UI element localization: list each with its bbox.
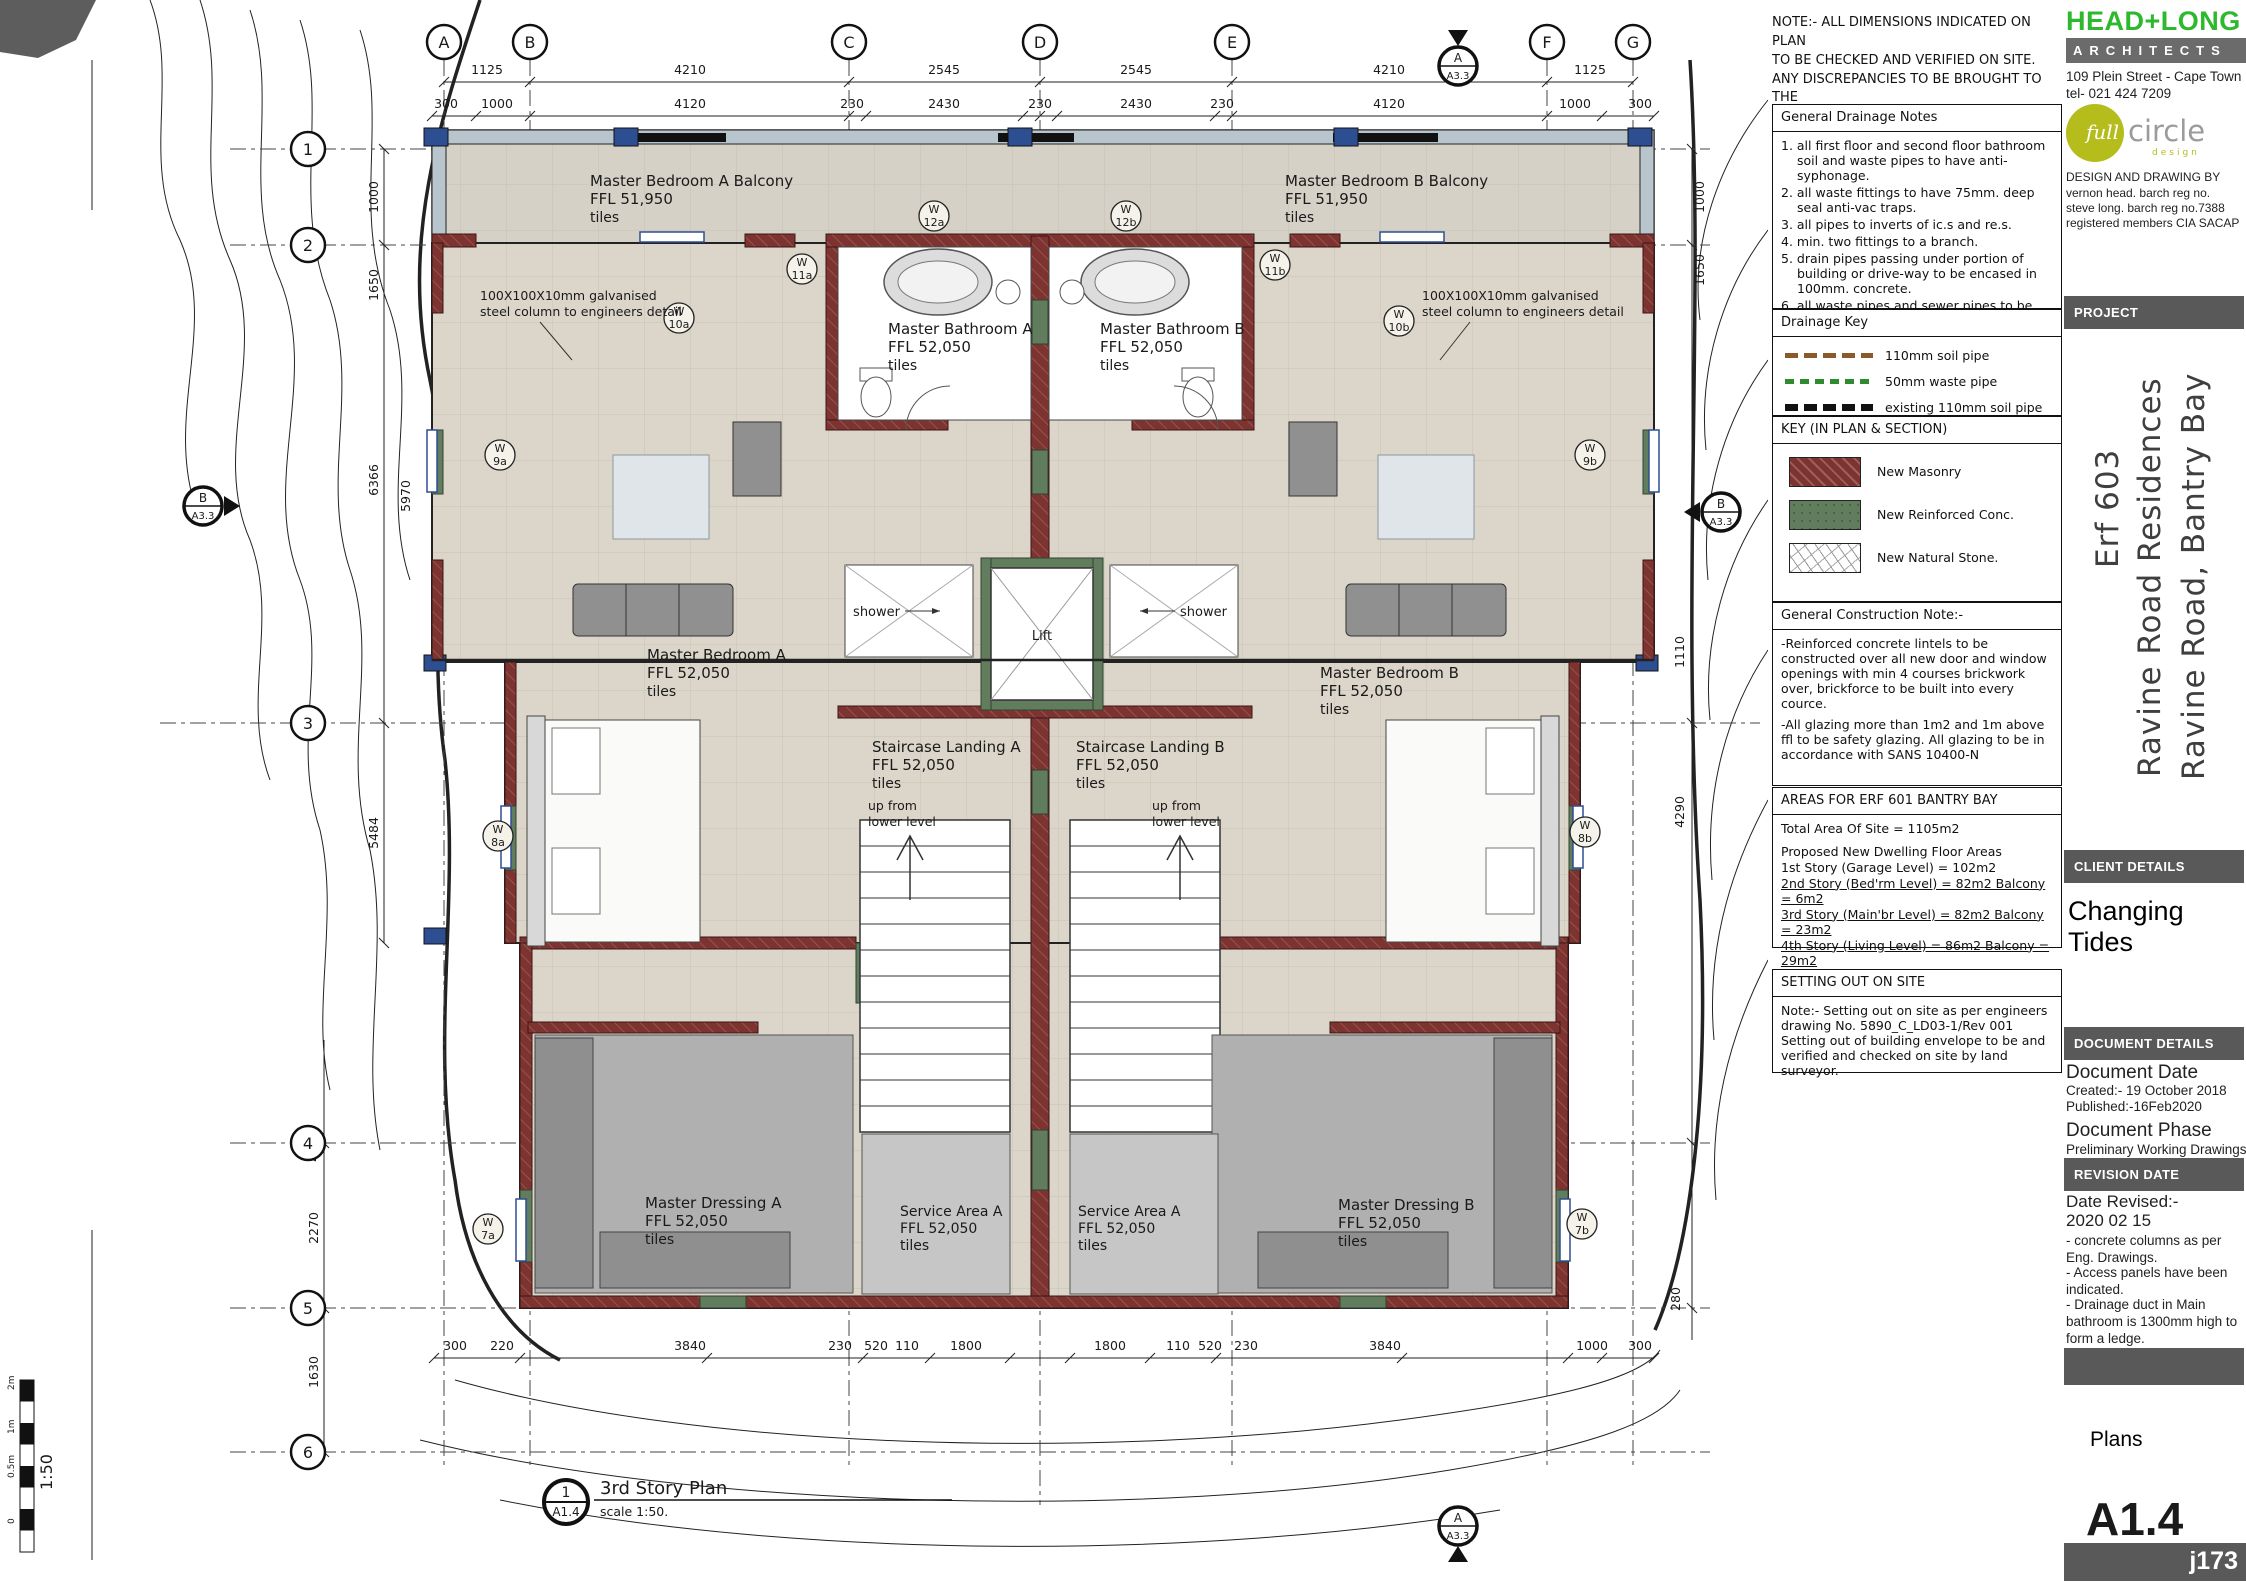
dim: 300 <box>443 1338 467 1353</box>
dim: 4210 <box>674 62 706 77</box>
box-title: General Construction Note:- <box>1773 603 2061 630</box>
grid-label: E <box>1227 33 1237 52</box>
section-letter: B <box>199 491 207 505</box>
dim: 520 <box>864 1338 888 1353</box>
steel-column-note-b2: steel column to engineers detail <box>1422 304 1624 319</box>
window-tag-id: 9b <box>1583 455 1597 468</box>
scale-tick: 1m <box>7 1420 17 1435</box>
project-name: Ravine Road Residences <box>2132 255 2168 777</box>
client-section-bar: CLIENT DETAILS <box>2064 850 2244 883</box>
dim: 220 <box>490 1338 514 1353</box>
room-name: Service Area A <box>1078 1204 1181 1220</box>
window-tag-id: 9a <box>493 455 507 468</box>
revision-note: - Access panels have been indicated. <box>2066 1265 2244 1299</box>
window-tag-id: 12a <box>924 216 945 229</box>
window-tag-prefix: W <box>797 256 808 269</box>
drainage-key-label: existing 110mm soil pipe <box>1885 400 2042 415</box>
dim: 230 <box>1028 96 1052 111</box>
room-ffl: FFL 52,050 <box>888 338 971 356</box>
room-finish: tiles <box>900 1238 929 1254</box>
window-tag-prefix: W <box>495 442 506 455</box>
room-name: Master Bedroom A <box>647 646 787 664</box>
document-phase-heading: Document Phase <box>2066 1120 2246 1142</box>
plan-key-row: New Natural Stone. <box>1789 543 2053 573</box>
document-date-heading: Document Date <box>2066 1062 2246 1084</box>
new-natural-stone-swatch <box>1789 543 1861 573</box>
window-tag-id: 10a <box>669 318 690 331</box>
plan-key-box: KEY (IN PLAN & SECTION) New Masonry New … <box>1772 416 2062 602</box>
revision-date: 2020 02 15 <box>2066 1211 2246 1231</box>
firm-logo-sub: ARCHITECTS <box>2066 38 2246 63</box>
revision-note: - concrete columns as per Eng. Drawings. <box>2066 1233 2244 1267</box>
design-credit-line: registered members CIA SACAP <box>2066 216 2246 231</box>
room-name: Master Bathroom A <box>888 320 1033 338</box>
area-line: 2nd Story (Bed'rm Level) = 82m2 Balcony … <box>1781 876 2053 906</box>
dim: 2545 <box>1120 62 1152 77</box>
room-name: Master Bathroom B <box>1100 320 1245 338</box>
setting-out-line: drawing No. 5890_C_LD03-1/Rev 001 <box>1781 1018 2053 1033</box>
box-title: Drainage Key <box>1773 310 2061 337</box>
area-line: 1st Story (Garage Level) = 102m2 <box>1781 860 2053 875</box>
dim: 110 <box>895 1338 919 1353</box>
drainage-key-label: 110mm soil pipe <box>1885 348 1989 363</box>
construction-note-para: -Reinforced concrete lintels to be const… <box>1781 636 2053 711</box>
note-line: ANY DISCREPANCIES TO BE BROUGHT TO THE <box>1772 71 2048 109</box>
dim: 300 <box>1628 96 1652 111</box>
window-tag-id: 8b <box>1578 832 1592 845</box>
section-letter: A <box>1454 1511 1463 1525</box>
dim: 1110 <box>1672 636 1687 668</box>
areas-box: AREAS FOR ERF 601 BANTRY BAY Total Area … <box>1772 787 2062 948</box>
dim: 280 <box>1668 1287 1683 1311</box>
grid-label: B <box>525 33 536 52</box>
room-ffl: FFL 52,050 <box>1078 1221 1155 1237</box>
room-name: Master Dressing A <box>645 1194 782 1212</box>
drainage-note: 5. drain pipes passing under portion of … <box>1781 251 2053 296</box>
room-name: Staircase Landing A <box>872 738 1021 756</box>
plan-key-label: New Natural Stone. <box>1877 550 1998 565</box>
section-ref: A3.3 <box>1447 71 1470 82</box>
dim: 1000 <box>1559 96 1591 111</box>
drainage-key-row: 110mm soil pipe <box>1785 348 2053 363</box>
room-ffl: FFL 52,050 <box>1076 756 1159 774</box>
scale-tick: 0 <box>7 1518 17 1524</box>
room-name: Master Bedroom B Balcony <box>1285 172 1488 190</box>
drainage-note: 2. all waste fittings to have 75mm. deep… <box>1781 185 2053 215</box>
grid-label: 2 <box>303 236 313 255</box>
window-tag-prefix: W <box>929 203 940 216</box>
dim: 230 <box>1210 96 1234 111</box>
room-name: Service Area A <box>900 1204 1003 1220</box>
window-tag-prefix: W <box>483 1216 494 1229</box>
plan-key-label: New Reinforced Conc. <box>1877 507 2014 522</box>
window-tag-prefix: W <box>1580 819 1591 832</box>
new-reinforced-conc-swatch <box>1789 500 1861 530</box>
note-line: NOTE:- ALL DIMENSIONS INDICATED ON PLAN <box>1772 14 2048 52</box>
steel-column-note-b1: 100X100X10mm galvanised <box>1422 288 1599 303</box>
room-name: Master Bedroom A Balcony <box>590 172 793 190</box>
note-line: TO BE CHECKED AND VERIFIED ON SITE. <box>1772 52 2048 71</box>
grid-label: D <box>1034 33 1046 52</box>
up-note-a2: lower level <box>868 814 936 829</box>
room-ffl: FFL 52,050 <box>872 756 955 774</box>
steel-column-note-a2: steel column to engineers detail <box>480 304 682 319</box>
window-tag-prefix: W <box>1121 203 1132 216</box>
dim: 1650 <box>366 269 381 301</box>
window-tag-id: 11b <box>1265 265 1286 278</box>
box-title: AREAS FOR ERF 601 BANTRY BAY <box>1773 788 2061 815</box>
plan-ref-number: 1 <box>562 1485 571 1501</box>
dim: 110 <box>1166 1338 1190 1353</box>
dim: 5484 <box>366 817 381 849</box>
dim: 230 <box>828 1338 852 1353</box>
window-tag-prefix: W <box>1394 308 1405 321</box>
plan-key-row: New Masonry <box>1789 457 2053 487</box>
room-ffl: FFL 52,050 <box>647 664 730 682</box>
dim: 1800 <box>1094 1338 1126 1353</box>
construction-note-para: -All glazing more than 1m2 and 1m above … <box>1781 717 2053 762</box>
dim: 4120 <box>1373 96 1405 111</box>
soil-pipe-swatch <box>1785 353 1873 358</box>
document-phase: Preliminary Working Drawings <box>2066 1142 2246 1159</box>
dim: 4290 <box>1672 796 1687 828</box>
client-name: Changing Tides <box>2068 896 2246 958</box>
dim: 230 <box>1234 1338 1258 1353</box>
room-name: Master Bedroom B <box>1320 664 1459 682</box>
site-area-line: Total Area Of Site = 1105m2 <box>1781 821 2053 836</box>
room-ffl: FFL 51,950 <box>1285 190 1368 208</box>
window-tag-id: 7b <box>1575 1224 1589 1237</box>
dim: 1000 <box>1692 181 1707 213</box>
dim: 1000 <box>366 181 381 213</box>
document-created: Created:- 19 October 2018 <box>2066 1083 2246 1100</box>
drainage-note: 3. all pipes to inverts of ic.s and re.s… <box>1781 217 2053 232</box>
room-name: Master Dressing B <box>1338 1196 1475 1214</box>
room-finish: tiles <box>1338 1234 1367 1250</box>
plan-ref-sheet: A1.4 <box>552 1505 579 1519</box>
job-number: j173 <box>2189 1547 2238 1575</box>
window-tag-id: 12b <box>1116 216 1137 229</box>
room-ffl: FFL 52,050 <box>900 1221 977 1237</box>
section-letter: A <box>1454 51 1463 65</box>
plan-key-row: New Reinforced Conc. <box>1789 500 2053 530</box>
design-credit-line: vernon head. barch reg no. <box>2066 186 2246 201</box>
grid-label: 1 <box>303 140 313 159</box>
drainage-note: 4. min. two fittings to a branch. <box>1781 234 2053 249</box>
revision-heading: Date Revised:- <box>2066 1192 2246 1212</box>
setting-out-box: SETTING OUT ON SITE Note:- Setting out o… <box>1772 969 2062 1073</box>
scale-tick: 2m <box>7 1376 17 1391</box>
fullcircle-logo-design: design <box>2152 148 2200 158</box>
grid-label: 6 <box>303 1443 313 1462</box>
document-section-bar: DOCUMENT DETAILS <box>2064 1027 2244 1060</box>
waste-pipe-swatch <box>1785 379 1873 384</box>
dim: 2270 <box>306 1212 321 1244</box>
plan-scale: scale 1:50. <box>600 1504 668 1519</box>
window-tag-id: 10b <box>1389 321 1410 334</box>
design-credit-line: steve long. barch reg no.7388 <box>2066 201 2246 216</box>
dim: 1000 <box>481 96 513 111</box>
dim: 4120 <box>674 96 706 111</box>
window-tag-prefix: W <box>1270 252 1281 265</box>
shower-label-a: shower <box>853 605 901 620</box>
up-note-a1: up from <box>868 798 917 813</box>
room-finish: tiles <box>590 210 619 226</box>
dim: 1650 <box>1692 254 1707 286</box>
scale-tick: 0.5m <box>7 1455 17 1478</box>
fullcircle-logo-circle: circle <box>2128 114 2205 148</box>
dim: 1125 <box>1574 62 1606 77</box>
dim: 6366 <box>366 464 381 496</box>
window-tag-prefix: W <box>493 823 504 836</box>
drainage-key-label: 50mm waste pipe <box>1885 374 1997 389</box>
grid-label: 4 <box>303 1134 313 1153</box>
dim: 300 <box>434 96 458 111</box>
grid-label: G <box>1627 33 1639 52</box>
dim: 2430 <box>928 96 960 111</box>
grid-label: F <box>1542 33 1551 52</box>
setting-out-line: Note:- Setting out on site as per engine… <box>1781 1003 2053 1018</box>
revision-section-bar: REVISION DATE <box>2064 1158 2244 1191</box>
project-erf: Erf 603 <box>2090 408 2126 568</box>
dim: 4210 <box>1373 62 1405 77</box>
document-published: Published:-16Feb2020 <box>2066 1099 2246 1116</box>
project-address: Ravine Road, Bantry Bay <box>2176 255 2212 780</box>
box-title: General Drainage Notes <box>1773 105 2061 132</box>
room-finish: tiles <box>872 776 901 792</box>
design-credit-title: DESIGN AND DRAWING BY <box>2066 170 2246 185</box>
scale-bar-label: 1:50 <box>37 1454 56 1490</box>
drainage-key-row: existing 110mm soil pipe <box>1785 400 2053 415</box>
dim: 1800 <box>950 1338 982 1353</box>
window-tag-id: 8a <box>491 836 505 849</box>
grid-label: 5 <box>303 1299 313 1318</box>
sheet-name: Plans <box>2090 1428 2143 1452</box>
fullcircle-logo-full: full <box>2086 120 2119 144</box>
drainage-key-box: Drainage Key 110mm soil pipe 50mm waste … <box>1772 309 2062 416</box>
areas-heading: Proposed New Dwelling Floor Areas <box>1781 844 2053 859</box>
scale-bar: 1:50 2m 1m 0.5m 0 <box>7 1376 56 1553</box>
firm-address: 109 Plein Street - Cape Town <box>2066 68 2246 86</box>
grid-label: A <box>439 33 450 52</box>
dim: 520 <box>1198 1338 1222 1353</box>
general-drainage-notes-box: General Drainage Notes 1. all first floo… <box>1772 104 2062 309</box>
new-masonry-swatch <box>1789 457 1861 487</box>
up-note-b1: up from <box>1152 798 1201 813</box>
section-ref: A3.3 <box>1447 1531 1470 1542</box>
room-finish: tiles <box>1320 702 1349 718</box>
job-number-bar: j173 <box>2064 1543 2246 1581</box>
revision-note: - Drainage duct in Main bathroom is 1300… <box>2066 1297 2244 1348</box>
dim: 3840 <box>674 1338 706 1353</box>
window-tag-id: 7a <box>481 1229 495 1242</box>
sheet-corner-shade <box>0 0 96 58</box>
shower-label-b: shower <box>1180 605 1228 620</box>
drawing-sheet: 1125 4210 2545 2545 4210 1125 300 1000 4… <box>0 0 2246 1588</box>
section-ref: A3.3 <box>1710 517 1733 528</box>
steel-column-note-a1: 100X100X10mm galvanised <box>480 288 657 303</box>
dim: 5970 <box>398 480 413 512</box>
dim: 1125 <box>471 62 503 77</box>
room-ffl: FFL 52,050 <box>1320 682 1403 700</box>
existing-soil-pipe-swatch <box>1785 404 1873 411</box>
room-ffl: FFL 51,950 <box>590 190 673 208</box>
room-ffl: FFL 52,050 <box>1100 338 1183 356</box>
dim: 300 <box>1628 1338 1652 1353</box>
room-finish: tiles <box>1100 358 1129 374</box>
dim: 2430 <box>1120 96 1152 111</box>
dim: 1630 <box>306 1356 321 1388</box>
section-letter: B <box>1717 497 1725 511</box>
firm-phone: tel- 021 424 7209 <box>2066 85 2246 103</box>
grid-label: 3 <box>303 714 313 733</box>
dim: 2545 <box>928 62 960 77</box>
plan-key-label: New Masonry <box>1877 464 1961 479</box>
grid-label: C <box>843 33 854 52</box>
window-tag-prefix: W <box>1577 1211 1588 1224</box>
lift-label: Lift <box>1032 629 1052 644</box>
window-tag-prefix: W <box>1585 442 1596 455</box>
room-ffl: FFL 52,050 <box>1338 1214 1421 1232</box>
plan-title-block: 1 A1.4 3rd Story Plan scale 1:50. <box>544 1478 952 1524</box>
plan-title: 3rd Story Plan <box>600 1478 727 1499</box>
room-finish: tiles <box>645 1232 674 1248</box>
room-finish: tiles <box>888 358 917 374</box>
construction-note-box: General Construction Note:- -Reinforced … <box>1772 602 2062 786</box>
sheet-number: A1.4 <box>2086 1492 2183 1546</box>
box-title: KEY (IN PLAN & SECTION) <box>1773 417 2061 444</box>
dim: 230 <box>840 96 864 111</box>
dim: 3840 <box>1369 1338 1401 1353</box>
area-line: 3rd Story (Main'br Level) = 82m2 Balcony… <box>1781 907 2053 937</box>
setting-out-line: verified and checked on site by land sur… <box>1781 1048 2053 1078</box>
up-note-b2: lower level <box>1152 814 1220 829</box>
room-finish: tiles <box>1076 776 1105 792</box>
room-name: Staircase Landing B <box>1076 738 1225 756</box>
window-tag-id: 11a <box>792 269 813 282</box>
box-title: SETTING OUT ON SITE <box>1773 970 2061 997</box>
room-finish: tiles <box>647 684 676 700</box>
dim: 1000 <box>1576 1338 1608 1353</box>
area-line: 4th Story (Living Level) = 86m2 Balcony … <box>1781 938 2053 968</box>
firm-logo-name: HEAD+LONG <box>2066 6 2246 37</box>
room-finish: tiles <box>1078 1238 1107 1254</box>
room-finish: tiles <box>1285 210 1314 226</box>
section-ref: A3.3 <box>192 511 215 522</box>
spacer-bar <box>2064 1348 2244 1385</box>
setting-out-line: Setting out of building envelope to be a… <box>1781 1033 2053 1048</box>
drainage-key-row: 50mm waste pipe <box>1785 374 2053 389</box>
room-ffl: FFL 52,050 <box>645 1212 728 1230</box>
floor-plan-drawing: 1125 4210 2545 2545 4210 1125 300 1000 4… <box>0 0 1768 1588</box>
drainage-note: 1. all first floor and second floor bath… <box>1781 138 2053 183</box>
